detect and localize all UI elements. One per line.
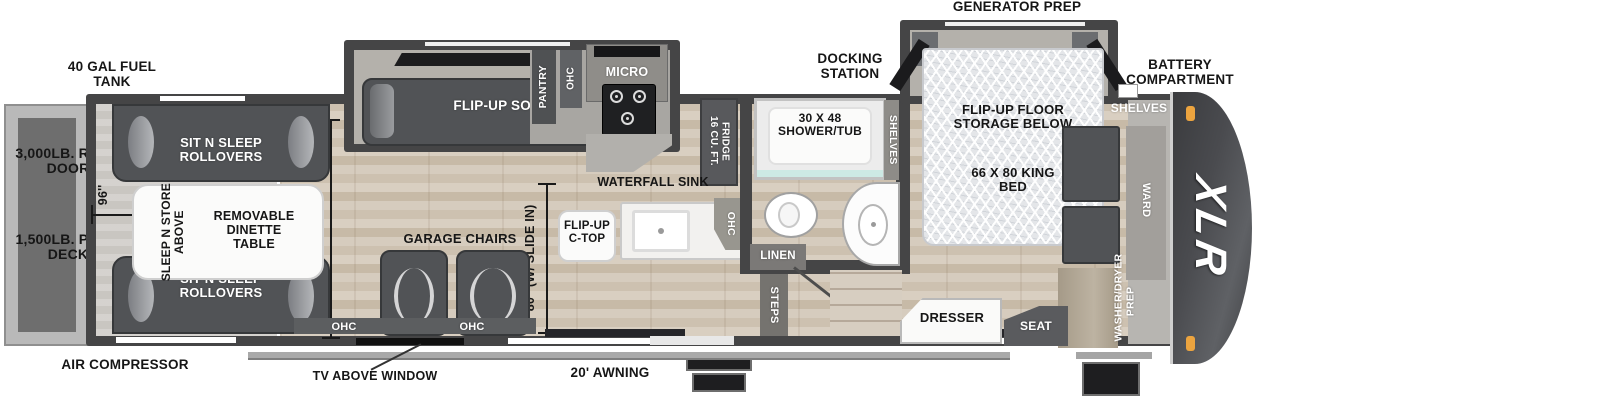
tv-bar	[356, 338, 464, 345]
bedroom-cabinet	[1062, 206, 1120, 264]
micro-label: MICRO	[592, 66, 662, 80]
stove-burner	[621, 112, 634, 125]
battery-compartment-label: BATTERY COMPARTMENT	[1098, 58, 1262, 88]
seat-label: SEAT	[1006, 320, 1066, 333]
tv-above-window-label: TV ABOVE WINDOW	[312, 370, 438, 384]
dim-98-line	[330, 120, 332, 338]
dim-98-tick-bottom	[322, 337, 340, 339]
sofa-armrest-left	[370, 84, 394, 138]
island-ohc-label: OHC	[724, 202, 736, 246]
awning-bar	[248, 352, 1010, 360]
chair-stripe	[394, 268, 434, 324]
docking-station-label: DOCKING STATION	[798, 52, 902, 82]
flip-up-ctop-label: FLIP-UP C-TOP	[560, 220, 614, 245]
generator-prep-label: GENERATOR PREP	[952, 0, 1082, 15]
fuel-tank-label: 40 GAL FUEL TANK	[52, 60, 172, 90]
garage-chairs-label: GARAGE CHAIRS	[398, 232, 522, 246]
air-compressor-label: AIR COMPRESSOR	[55, 358, 195, 373]
front-step-bar	[1076, 352, 1152, 359]
rollover-top-label: SIT N SLEEP ROLLOVERS	[138, 136, 304, 165]
xlr-floorplan: 3,000LB. RAMP DOOR 1,500LB. PATIO DECK F…	[0, 0, 1600, 404]
floor-storage-label: FLIP-UP FLOOR STORAGE BELOW	[948, 103, 1078, 132]
dresser-label: DRESSER	[912, 311, 992, 325]
dim-80-tick-top	[538, 183, 556, 185]
xlr-logo: XLR	[1186, 152, 1234, 302]
bottom-ohc-label-left: OHC	[322, 321, 366, 333]
vanity-faucet-dot	[871, 222, 876, 227]
awning-label: 20' AWNING	[540, 366, 680, 381]
front-step-box	[1082, 362, 1140, 396]
fridge-label: 16 CU. FT. FRIDGE	[701, 99, 737, 183]
bedroom-cabinet	[1062, 126, 1120, 202]
dim-80-line	[546, 184, 548, 334]
chair-stripe	[470, 268, 516, 324]
entry-step	[692, 373, 746, 392]
sleep-n-store-label: SLEEP N STORE ABOVE	[160, 172, 186, 292]
sink-faucet-dot	[658, 228, 664, 234]
king-bed-label: 66 X 80 KING BED	[958, 166, 1068, 195]
garage-top-window	[160, 96, 245, 101]
sofa-slide-sill	[425, 42, 570, 46]
shower-glass-strip	[757, 170, 883, 177]
bedroom-steps	[830, 270, 902, 336]
ward-label: WARD	[1140, 170, 1152, 230]
stove-burner	[610, 90, 623, 103]
kitchen-window	[594, 46, 660, 57]
bottom-window	[116, 337, 236, 343]
bottom-ohc-label-right: OHC	[450, 321, 494, 333]
stove-cooktop	[602, 84, 656, 136]
linen-label: LINEN	[750, 250, 806, 263]
dim-96-tick	[91, 205, 93, 224]
toilet-bowl	[778, 202, 800, 228]
dinette-label: REMOVABLE DINETTE TABLE	[205, 210, 303, 251]
clearance-light	[1186, 106, 1195, 121]
kitchen-ohc-label: OHC	[566, 57, 577, 101]
stove-burner	[633, 90, 646, 103]
waterfall-sink-label: WATERFALL SINK	[588, 176, 718, 190]
steps-label: STEPS	[768, 277, 780, 333]
clearance-light	[1186, 336, 1195, 351]
washer-dryer-label: WASHER/DRYER PREP	[1113, 262, 1136, 342]
shower-label: 30 X 48 SHOWER/TUB	[778, 112, 862, 138]
entry-door-gap	[650, 336, 734, 345]
bed-slide-sill	[945, 22, 1085, 26]
pantry-label: PANTRY	[538, 52, 550, 122]
bath-shelves-label: SHELVES	[886, 104, 898, 176]
dim-96-label: 96''	[97, 173, 111, 217]
